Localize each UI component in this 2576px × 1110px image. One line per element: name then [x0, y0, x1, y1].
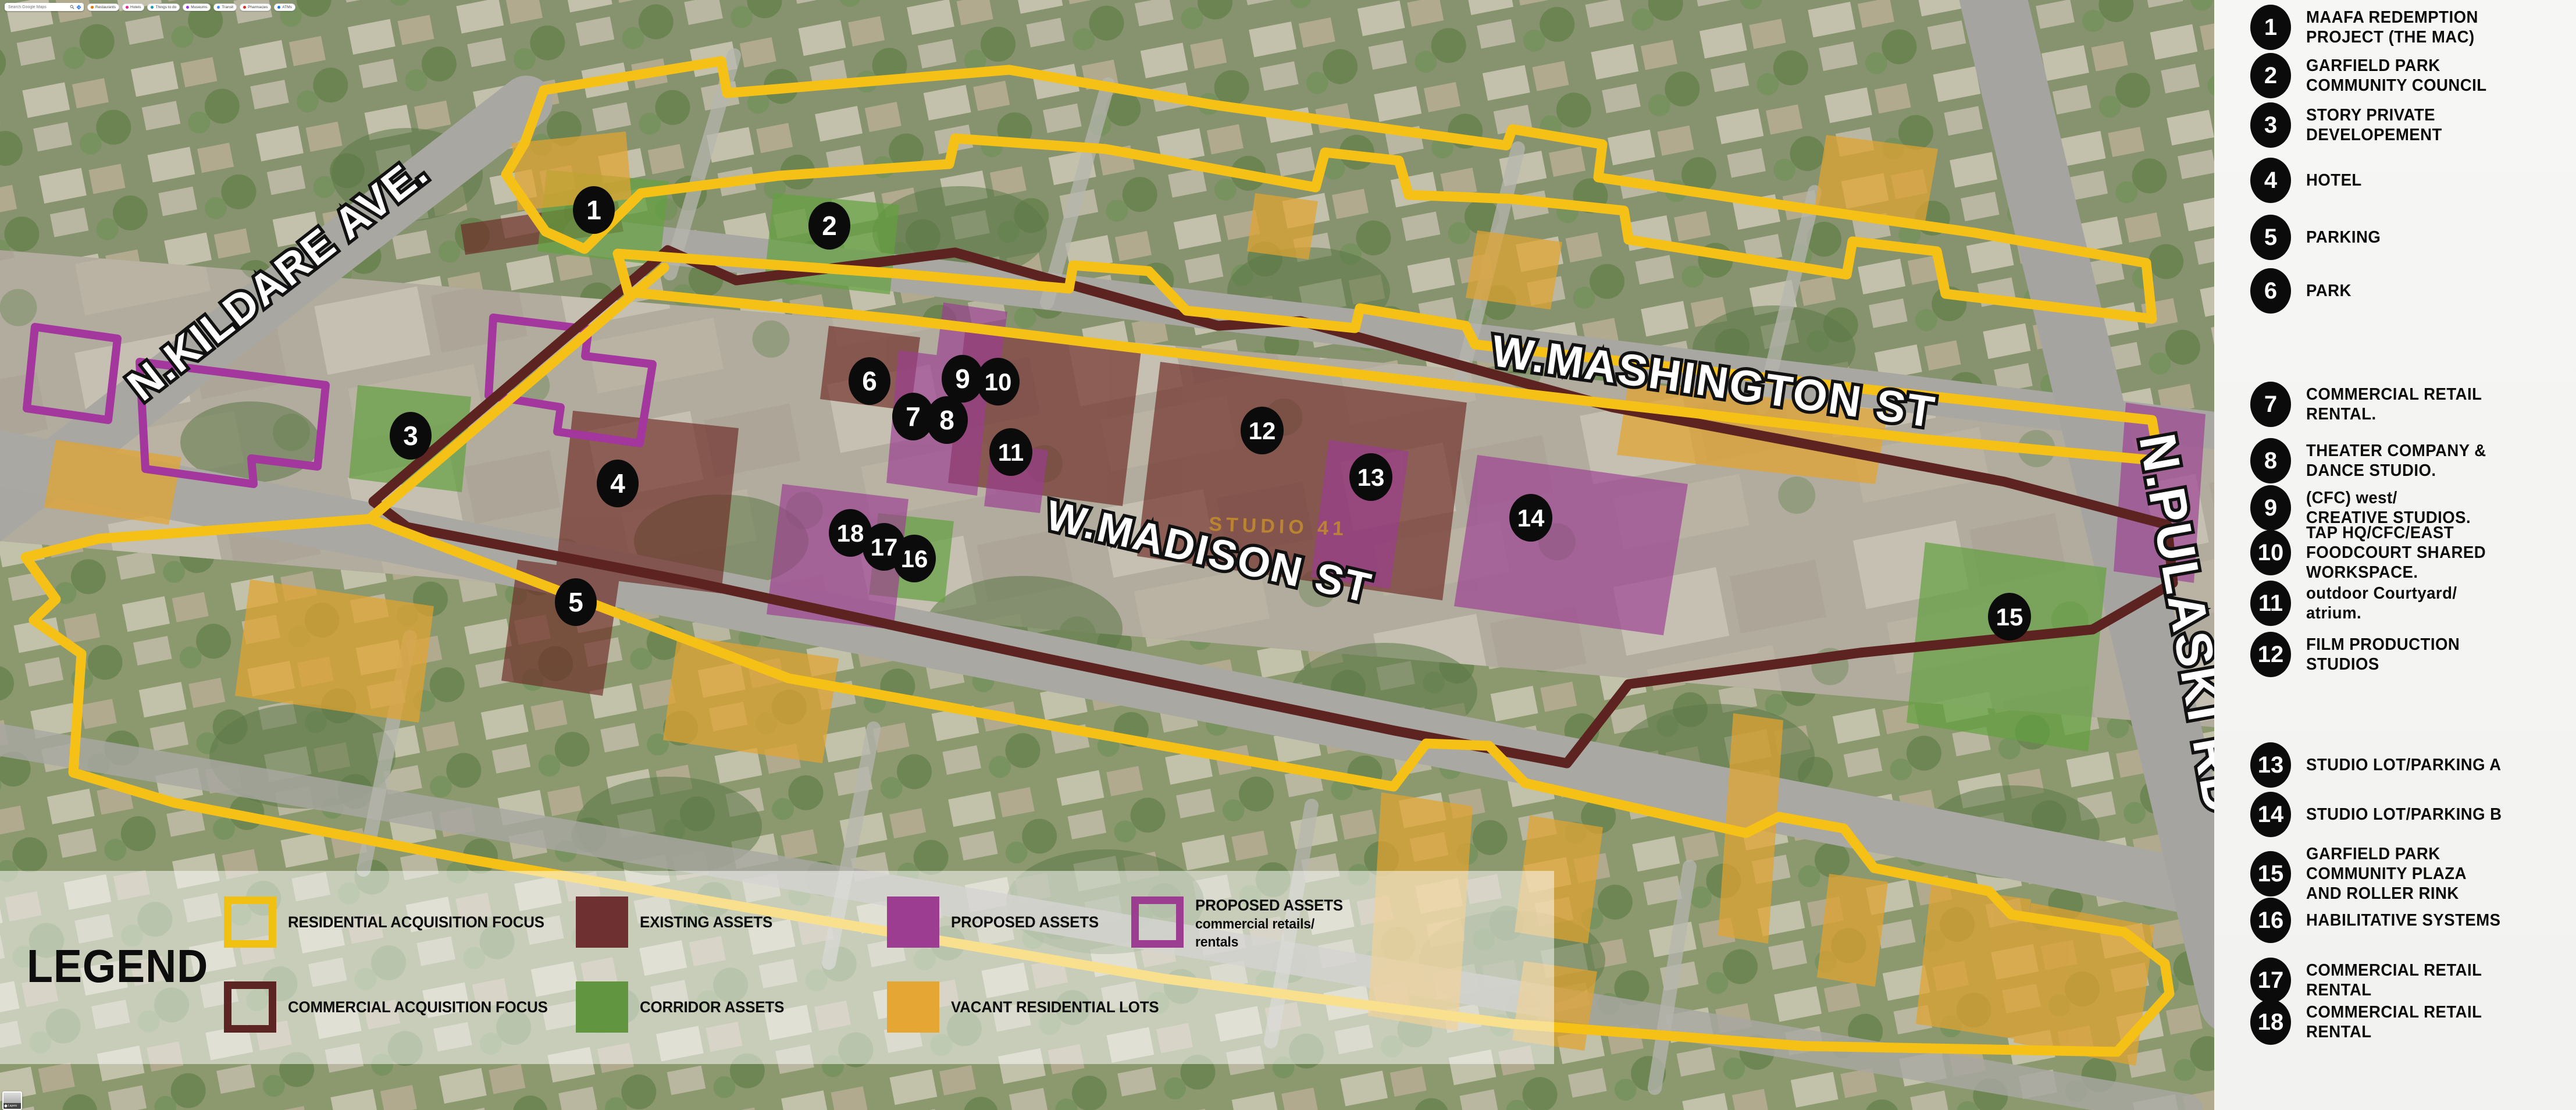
screenshot-root: N.KILDARE AVE. W.MASHINGTON ST W.MADISON… [0, 0, 2576, 1110]
map-marker-14: 14 [1509, 494, 1552, 542]
key-item-10: 10TAP HQ/CFC/EAST FOODCOURT SHARED WORKS… [2214, 523, 2576, 582]
legend-swatch-proposed [887, 896, 939, 948]
chip-pharmacies[interactable]: Pharmacies [240, 3, 271, 11]
google-topbar: Restaurants Hotels Things to do Museums … [5, 3, 295, 11]
key-item-5: 5PARKING [2214, 215, 2576, 260]
map-marker-2: 2 [808, 202, 850, 250]
key-item-15: 15GARFIELD PARK COMMUNITY PLAZA AND ROLL… [2214, 844, 2576, 903]
key-sidebar: 1MAAFA REDEMPTION PROJECT (THE MAC) 2GAR… [2214, 0, 2576, 1110]
chip-atms[interactable]: ATMs [274, 3, 295, 11]
map-marker-12: 12 [1241, 407, 1284, 454]
map-marker-11: 11 [989, 428, 1032, 476]
svg-text:14: 14 [1517, 504, 1545, 532]
search-icon[interactable] [70, 5, 74, 9]
chip-museums[interactable]: Museums [183, 3, 211, 11]
svg-text:10: 10 [985, 368, 1012, 396]
legend-entry-residential-acquisition: RESIDENTIAL ACQUISITION FOCUS [224, 896, 555, 948]
map-marker-10: 10 [977, 358, 1020, 405]
map-marker-4: 4 [597, 460, 639, 507]
search-box[interactable] [5, 3, 84, 11]
key-item-13: 13STUDIO LOT/PARKING A [2214, 742, 2576, 788]
svg-text:4: 4 [610, 468, 625, 499]
svg-text:6: 6 [862, 366, 877, 396]
chip-restaurants[interactable]: Restaurants [87, 3, 119, 11]
key-item-3: 3STORY PRIVATE DEVELOPEMENT [2214, 102, 2576, 148]
legend-entry-commercial-acquisition: COMMERCIAL ACQUISITION FOCUS [224, 981, 558, 1033]
svg-text:5: 5 [568, 587, 583, 617]
map-marker-5: 5 [555, 578, 597, 626]
legend-swatch-vacant [887, 981, 939, 1033]
svg-text:12: 12 [1249, 417, 1276, 444]
legend-panel: LEGEND RESIDENTIAL ACQUISITION FOCUS COM… [0, 871, 1554, 1064]
layers-icon [4, 1104, 8, 1108]
key-item-17: 17COMMERCIAL RETAIL RENTAL [2214, 958, 2576, 1003]
key-item-14: 14STUDIO LOT/PARKING B [2214, 792, 2576, 837]
legend-title: LEGEND [27, 940, 208, 993]
map-marker-6: 6 [849, 357, 890, 405]
key-item-8: 8THEATER COMPANY & DANCE STUDIO. [2214, 438, 2576, 483]
svg-text:13: 13 [1358, 464, 1385, 491]
map-marker-15: 15 [1988, 593, 2031, 641]
svg-text:8: 8 [939, 405, 954, 435]
legend-entry-proposed-assets: PROPOSED ASSETS [887, 896, 1105, 948]
map-marker-18: 18 [829, 509, 872, 557]
key-item-18: 18COMMERCIAL RETAIL RENTAL [2214, 999, 2576, 1045]
legend-entry-proposed-retail: PROPOSED ASSETScommercial retails/ renta… [1131, 896, 1349, 951]
key-item-11: 11outdoor Courtyard/ atrium. [2214, 581, 2576, 626]
chip-hotels[interactable]: Hotels [122, 3, 144, 11]
svg-text:1: 1 [586, 195, 601, 225]
legend-entry-vacant-lots: VACANT RESIDENTIAL LOTS [887, 981, 1167, 1033]
legend-swatch-proposed-retail [1131, 896, 1184, 948]
svg-text:7: 7 [906, 401, 921, 432]
key-item-6: 6PARK [2214, 268, 2576, 314]
map-marker-3: 3 [390, 412, 432, 460]
key-item-1: 1MAAFA REDEMPTION PROJECT (THE MAC) [2214, 5, 2576, 50]
svg-text:17: 17 [871, 533, 898, 561]
key-item-16: 16HABILITATIVE SYSTEMS [2214, 898, 2576, 943]
legend-entry-existing-assets: EXISTING ASSETS [576, 896, 778, 948]
legend-swatch-corridor [576, 981, 628, 1033]
search-input[interactable] [8, 5, 68, 9]
layers-control[interactable]: Layers [2, 1091, 22, 1110]
key-item-7: 7COMMERCIAL RETAIL RENTAL. [2214, 382, 2576, 427]
svg-text:3: 3 [403, 421, 418, 451]
legend-swatch-residential [224, 896, 276, 948]
chip-transit[interactable]: Transit [213, 3, 237, 11]
key-item-2: 2GARFIELD PARK COMMUNITY COUNCIL [2214, 53, 2576, 98]
svg-text:9: 9 [955, 364, 970, 394]
svg-text:11: 11 [998, 439, 1024, 466]
chip-things-to-do[interactable]: Things to do [147, 3, 180, 11]
legend-swatch-existing [576, 896, 628, 948]
category-chips: Restaurants Hotels Things to do Museums … [87, 3, 295, 11]
legend-swatch-commercial [224, 981, 276, 1033]
svg-text:2: 2 [822, 211, 837, 241]
legend-entry-corridor-assets: CORRIDOR ASSETS [576, 981, 790, 1033]
map-marker-1: 1 [573, 186, 615, 234]
map-marker-8: 8 [926, 396, 968, 444]
map-marker-13: 13 [1349, 453, 1392, 501]
key-item-12: 12FILM PRODUCTION STUDIOS [2214, 632, 2576, 677]
key-item-4: 4HOTEL [2214, 158, 2576, 203]
directions-icon[interactable] [76, 5, 81, 10]
svg-text:18: 18 [837, 520, 864, 547]
svg-text:15: 15 [1996, 603, 2023, 631]
